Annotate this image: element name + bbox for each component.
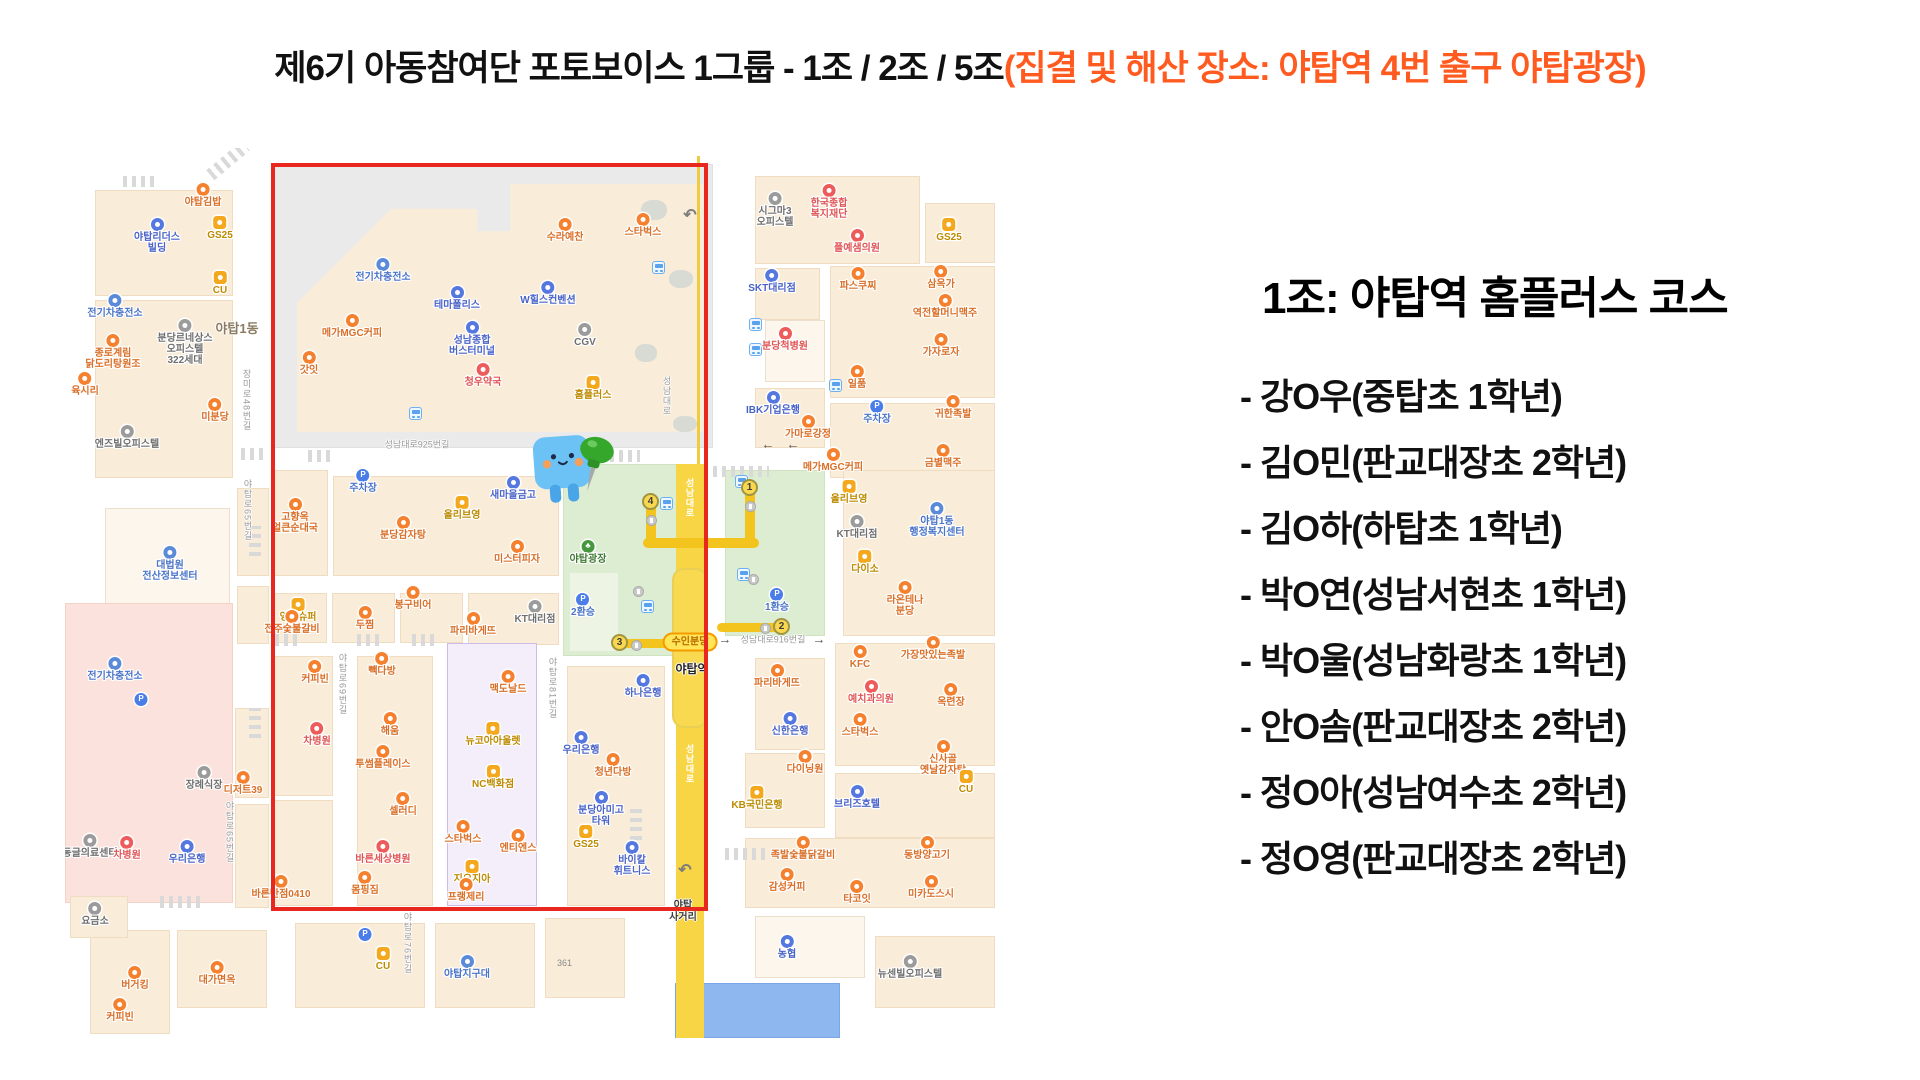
map-poi: KB국민은행 <box>731 786 782 811</box>
bus-stop-icon <box>829 379 842 392</box>
poi-icon <box>937 444 950 457</box>
map-poi: SKT대리점 <box>748 269 796 294</box>
poi-label: 삼옥가 <box>927 279 955 290</box>
map-poi: 메가MGC커피 <box>803 448 863 473</box>
poi-label: 가마로강정 <box>785 429 831 440</box>
map-poi: 플예샘의원 <box>834 229 880 254</box>
map-poi: 파스쿠찌 <box>840 267 877 292</box>
map-poi: 분당르네상스 오피스텔 322세대 <box>157 319 212 367</box>
poi-icon <box>106 334 119 347</box>
poi-label: 미카도스시 <box>908 889 954 900</box>
poi-label: CU <box>376 961 390 972</box>
map-poi: 야탑리더스 빌딩 <box>134 218 180 254</box>
map-block <box>160 896 200 908</box>
poi-icon <box>858 550 871 563</box>
poi-label: 신한은행 <box>772 726 809 737</box>
poi-label: 대법원 전산정보센터 <box>142 560 197 582</box>
poi-label: KB국민은행 <box>731 800 782 811</box>
poi-icon <box>236 771 249 784</box>
poi-icon <box>852 267 865 280</box>
poi-icon <box>944 683 957 696</box>
poi-icon <box>935 333 948 346</box>
exit-stairs-icon <box>745 501 756 512</box>
station-exit-1: 1 <box>741 479 758 496</box>
poi-label: 디저트39 <box>224 785 263 796</box>
poi-label: 가자로자 <box>923 347 960 358</box>
station-exit-2: 2 <box>773 618 790 635</box>
map-poi: 다이닝원 <box>787 750 824 775</box>
poi-label: GS25 <box>207 230 233 241</box>
poi-icon <box>899 581 912 594</box>
poi-icon <box>934 265 947 278</box>
road-label: 장미로48번길 <box>241 369 254 431</box>
poi-label: 장례식장 <box>186 780 223 791</box>
slide: 제6기 아동참여단 포토보이스 1그룹 - 1조 / 2조 / 5조(집결 및 … <box>0 0 1920 1080</box>
poi-icon <box>939 294 952 307</box>
poi-icon <box>128 966 141 979</box>
map-poi: 미분당 <box>201 398 229 423</box>
road-label: 성남대로916번길 <box>741 633 806 646</box>
poi-icon <box>120 836 133 849</box>
poi-label: 한국종합 복지재단 <box>811 198 848 220</box>
poi-label: 대가면옥 <box>199 975 236 986</box>
poi-icon <box>784 712 797 725</box>
poi-icon <box>797 836 810 849</box>
building-number-label: 361 <box>557 958 572 968</box>
poi-label: 야탑리더스 빌딩 <box>134 232 180 254</box>
poi-label: 미분당 <box>201 412 229 423</box>
map-poi: 족발숯불닭갈비 <box>771 836 835 861</box>
map-poi: 대가면옥 <box>199 961 236 986</box>
poi-icon <box>925 875 938 888</box>
map-poi: IBK기업은행 <box>746 391 800 416</box>
poi-icon <box>197 183 210 196</box>
poi-icon <box>765 269 778 282</box>
map-poi: 버거킹 <box>121 966 149 991</box>
map-poi: CU <box>213 271 227 296</box>
poi-icon <box>767 391 780 404</box>
poi-label: 파스쿠찌 <box>840 281 877 292</box>
poi-icon: P <box>771 588 784 601</box>
map-poi: P <box>135 693 148 706</box>
poi-icon <box>937 740 950 753</box>
poi-icon <box>163 546 176 559</box>
map-poi: 일품 <box>848 365 866 390</box>
map-poi: 육시리 <box>71 372 99 397</box>
poi-icon <box>942 218 955 231</box>
map-poi: 디저트39 <box>224 771 263 796</box>
map-poi: 동방양고기 <box>904 836 950 861</box>
map-poi: 대법원 전산정보센터 <box>142 546 197 582</box>
map-poi: 뉴센빌오피스텔 <box>878 955 942 980</box>
poi-icon <box>904 955 917 968</box>
map-poi: 스타벅스 <box>842 713 879 738</box>
map-poi: 시그마3 오피스텔 <box>757 192 794 228</box>
poi-label: 차병원 <box>113 850 141 861</box>
poi-label: 요금소 <box>81 916 109 927</box>
map-poi: 커피빈 <box>106 998 134 1023</box>
district-label: 야탑1동 <box>215 318 258 337</box>
member-item: - 김O하(하탑초 1학년) <box>1240 500 1626 566</box>
poi-label: 전기차충전소 <box>87 308 142 319</box>
poi-label: 일품 <box>848 379 866 390</box>
map-poi: 다이소 <box>851 550 879 575</box>
poi-label: 농협 <box>778 949 796 960</box>
poi-icon <box>921 836 934 849</box>
map-block <box>206 148 250 180</box>
poi-label: 커피빈 <box>106 1012 134 1023</box>
map-block <box>123 176 157 187</box>
poi-icon: P <box>135 693 148 706</box>
poi-label: 가장맛있는족발 <box>901 650 965 661</box>
poi-icon: P <box>359 928 372 941</box>
exit-stairs-icon <box>748 574 759 585</box>
map-poi: KT대리점 <box>837 515 878 540</box>
poi-icon <box>851 785 864 798</box>
poi-icon <box>927 636 940 649</box>
poi-label: 다이닝원 <box>787 764 824 775</box>
poi-icon <box>376 947 389 960</box>
poi-label: 라온테나 분당 <box>887 595 924 617</box>
poi-label: 스타벅스 <box>842 727 879 738</box>
poi-icon <box>843 480 856 493</box>
poi-label: 시그마3 오피스텔 <box>757 206 794 228</box>
poi-icon: P <box>870 400 883 413</box>
poi-label: 동방양고기 <box>904 850 950 861</box>
poi-icon <box>799 750 812 763</box>
map-poi: 엔즈빌오피스텔 <box>95 425 159 450</box>
map-poi: GS25 <box>207 216 233 241</box>
map-poi: P <box>359 928 372 941</box>
map-poi: 가마로강정 <box>785 415 831 440</box>
poi-icon <box>108 294 121 307</box>
map-poi: 역전할머니맥주 <box>913 294 977 319</box>
map-poi: 귀한족발 <box>935 395 972 420</box>
poi-icon <box>854 713 867 726</box>
map-poi: 농협 <box>778 935 796 960</box>
poi-icon <box>113 998 126 1011</box>
poi-icon <box>781 868 794 881</box>
map-poi: 삼옥가 <box>927 265 955 290</box>
poi-label: 종로계림 닭도리탕원조 <box>85 348 140 370</box>
member-item: - 안O솜(판교대장초 2학년) <box>1240 698 1626 764</box>
poi-icon <box>779 327 792 340</box>
map-poi: 옥련장 <box>937 683 965 708</box>
member-list: - 강O우(중탑초 1학년)- 김O민(판교대장초 2학년)- 김O하(하탑초 … <box>1240 368 1626 896</box>
poi-icon <box>769 192 782 205</box>
poi-label: 옥련장 <box>937 697 965 708</box>
poi-label: 야탑1동 행정복지센터 <box>909 516 964 538</box>
member-item: - 박O울(성남화랑초 1학년) <box>1240 632 1626 698</box>
poi-icon <box>851 365 864 378</box>
poi-label: 족발숯불닭갈비 <box>771 850 835 861</box>
poi-icon <box>854 645 867 658</box>
map-figure: 야탑김밥야탑리더스 빌딩GS25CU전기차충전소분당르네상스 오피스텔 322세… <box>65 148 1030 1038</box>
poi-label: 야탑김밥 <box>185 197 222 208</box>
poi-label: KT대리점 <box>837 529 878 540</box>
poi-label: CU <box>213 285 227 296</box>
highlight-rectangle <box>271 163 708 911</box>
map-poi: 전기차충전소 <box>87 294 142 319</box>
poi-icon <box>83 834 96 847</box>
poi-icon <box>751 786 764 799</box>
poi-icon <box>88 902 101 915</box>
poi-label: 파리바게뜨 <box>754 678 800 689</box>
map-poi: 감성커피 <box>769 868 806 893</box>
poi-label: GS25 <box>936 232 962 243</box>
map-poi: 한국종합 복지재단 <box>811 184 848 220</box>
poi-label: 감성커피 <box>769 882 806 893</box>
poi-icon <box>213 271 226 284</box>
map-poi: 전기차충전소 <box>87 657 142 682</box>
map-poi: 예치과의원 <box>848 680 894 705</box>
poi-label: 버거킹 <box>121 980 149 991</box>
poi-icon <box>851 515 864 528</box>
map-block <box>241 448 267 460</box>
member-item: - 정O영(판교대장초 2학년) <box>1240 830 1626 896</box>
map-poi: CU <box>959 770 973 795</box>
map-poi: 장례식장 <box>186 766 223 791</box>
poi-icon <box>781 935 794 948</box>
slide-title-main: 제6기 아동참여단 포토보이스 1그룹 - 1조 / 2조 / 5조 <box>274 49 1003 88</box>
poi-label: 주차장 <box>863 414 891 425</box>
poi-label: 타코잇 <box>843 894 871 905</box>
poi-label: CU <box>959 784 973 795</box>
poi-label: 1환승 <box>765 602 789 613</box>
direction-arrow: → <box>719 632 732 647</box>
bus-stop-icon <box>749 318 762 331</box>
slide-title-meeting-point: (집결 및 해산 장소: 야탑역 4번 출구 야탑광장) <box>1004 49 1646 88</box>
map-poi: 차병원 <box>113 836 141 861</box>
map-poi: 올리브영 <box>831 480 868 505</box>
slide-title: 제6기 아동참여단 포토보이스 1그룹 - 1조 / 2조 / 5조(집결 및 … <box>0 40 1920 91</box>
map-poi: GS25 <box>936 218 962 243</box>
poi-label: 분당르네상스 오피스텔 322세대 <box>157 333 212 367</box>
poi-icon <box>851 229 864 242</box>
map-poi: 우리은행 <box>169 840 206 865</box>
poi-icon <box>850 880 863 893</box>
poi-label: 메가MGC커피 <box>803 462 863 473</box>
map-poi: 요금소 <box>81 902 109 927</box>
map-block <box>725 848 765 860</box>
poi-icon <box>108 657 121 670</box>
poi-icon <box>151 218 164 231</box>
map-block <box>755 916 865 978</box>
poi-label: SKT대리점 <box>748 283 796 294</box>
poi-label: 다이소 <box>851 564 879 575</box>
member-item: - 정O아(성남여수초 2학년) <box>1240 764 1626 830</box>
map-poi: 분당척병원 <box>762 327 808 352</box>
member-item: - 강O우(중탑초 1학년) <box>1240 368 1626 434</box>
map-poi: 동글의료센터 <box>65 834 118 859</box>
map-poi: 미카도스시 <box>908 875 954 900</box>
poi-label: 예치과의원 <box>848 694 894 705</box>
poi-icon <box>208 398 221 411</box>
direction-arrow: ← <box>762 437 775 452</box>
poi-label: 금별맥주 <box>925 458 962 469</box>
map-block <box>249 708 261 738</box>
poi-icon <box>181 840 194 853</box>
map-poi: 가장맛있는족발 <box>901 636 965 661</box>
poi-label: 귀한족발 <box>935 409 972 420</box>
poi-label: 엔즈빌오피스텔 <box>95 439 159 450</box>
poi-icon <box>213 216 226 229</box>
road-label: 야탑로76번길 <box>402 912 415 974</box>
poi-icon <box>959 770 972 783</box>
direction-arrow: → <box>813 632 826 647</box>
poi-label: 뉴센빌오피스텔 <box>878 969 942 980</box>
poi-label: 분당척병원 <box>762 341 808 352</box>
poi-label: 역전할머니맥주 <box>913 308 977 319</box>
poi-label: 육시리 <box>71 386 99 397</box>
poi-icon <box>771 664 784 677</box>
poi-icon <box>823 184 836 197</box>
poi-icon <box>930 502 943 515</box>
road-label: 야탑로65번길 <box>224 801 237 863</box>
poi-icon <box>198 766 211 779</box>
poi-label: 플예샘의원 <box>834 243 880 254</box>
member-item: - 박O연(성남서현초 1학년) <box>1240 566 1626 632</box>
poi-icon <box>802 415 815 428</box>
poi-icon <box>121 425 134 438</box>
map-poi: 야탑지구대 <box>444 955 490 980</box>
poi-label: KFC <box>850 659 871 670</box>
poi-label: 야탑지구대 <box>444 969 490 980</box>
map-poi: 금별맥주 <box>925 444 962 469</box>
poi-icon <box>211 961 224 974</box>
map-poi: 가자로자 <box>923 333 960 358</box>
road-label: 야탑로65번길 <box>242 479 255 541</box>
map-poi: 브리즈호텔 <box>834 785 880 810</box>
map-poi: P1환승 <box>765 588 789 613</box>
map-poi: 파리바게뜨 <box>754 664 800 689</box>
poi-icon <box>826 448 839 461</box>
poi-label: 올리브영 <box>831 494 868 505</box>
poi-label: 브리즈호텔 <box>834 799 880 810</box>
map-poi: 타코잇 <box>843 880 871 905</box>
map-poi: CU <box>376 947 390 972</box>
map-poi: KFC <box>850 645 871 670</box>
map-poi: 종로계림 닭도리탕원조 <box>85 334 140 370</box>
poi-icon <box>461 955 474 968</box>
course-heading: 1조: 야탑역 홈플러스 코스 <box>1262 262 1728 326</box>
bus-stop-icon <box>749 343 762 356</box>
poi-label: 동글의료센터 <box>65 848 118 859</box>
poi-icon <box>947 395 960 408</box>
map-poi: 라온테나 분당 <box>887 581 924 617</box>
poi-label: 전기차충전소 <box>87 671 142 682</box>
map-poi: P주차장 <box>863 400 891 425</box>
map-poi: 신한은행 <box>772 712 809 737</box>
poi-icon <box>865 680 878 693</box>
poi-icon <box>178 319 191 332</box>
map-poi: 야탑김밥 <box>185 183 222 208</box>
member-item: - 김O민(판교대장초 2학년) <box>1240 434 1626 500</box>
map-poi: 야탑1동 행정복지센터 <box>909 502 964 538</box>
poi-label: 우리은행 <box>169 854 206 865</box>
poi-icon <box>78 372 91 385</box>
